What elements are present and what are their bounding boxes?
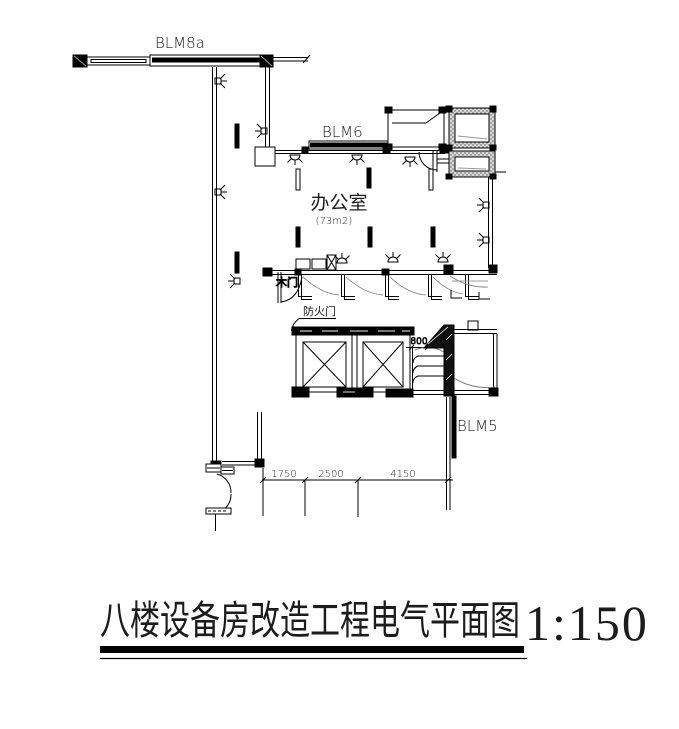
floor-plan-drawing: BLM8a BLM6 <box>0 0 679 729</box>
dim-4150: 4150 <box>390 469 415 480</box>
wood-door-label: 木门 <box>276 275 298 289</box>
busway-blm5: BLM5 <box>447 396 498 510</box>
sink <box>296 259 310 269</box>
dim-1750: 1750 <box>271 469 296 480</box>
ceiling-lamp-icon <box>350 155 365 165</box>
elevator-shaft <box>357 335 410 392</box>
exhaust-fan-icon <box>327 255 336 270</box>
sink <box>312 259 326 269</box>
ceiling-lamp-icon <box>403 157 418 167</box>
title-block: 八楼设备房改造工程电气平面图 1:150 <box>100 595 649 659</box>
office-name: 办公室 <box>310 192 367 214</box>
wall-lamp-icon <box>477 233 489 247</box>
stall-row: 木门 <box>263 252 497 303</box>
upper-right-rooms <box>385 106 506 179</box>
elevator-block: 800 <box>292 321 498 397</box>
fire-door-label: 防火门 <box>303 304 336 318</box>
elevator-shaft <box>296 335 352 392</box>
ceiling-lamp-icon <box>436 252 451 262</box>
blm6-label: BLM6 <box>322 123 363 141</box>
title-underline-thick <box>100 646 524 653</box>
dim-2500: 2500 <box>318 469 343 480</box>
lower-left-doors <box>206 412 264 514</box>
wall-lamp-icon <box>477 198 489 212</box>
floor-plan-canvas: BLM8a BLM6 <box>0 0 679 729</box>
ceiling-lamp-icon <box>386 252 401 262</box>
ceiling-lamp-icon <box>288 155 303 165</box>
ceiling-lamp-icon <box>335 253 350 263</box>
blm5-label: BLM5 <box>457 417 498 435</box>
busway-blm8a: BLM8a <box>73 34 310 67</box>
office-room: 办公室 (73m2) <box>288 155 418 227</box>
stair <box>413 347 445 392</box>
drawing-scale: 1:150 <box>525 595 649 651</box>
wall-lamp-icon <box>228 274 240 288</box>
stall-door-swings <box>303 276 488 295</box>
busway-blm6: BLM6 <box>309 123 389 149</box>
office-area: (73m2) <box>316 216 353 227</box>
dimension-line: 1750 2500 4150 <box>260 468 453 517</box>
drawing-title: 八楼设备房改造工程电气平面图 <box>100 598 520 644</box>
blm8a-label: BLM8a <box>155 34 205 52</box>
stall-partitions <box>299 275 480 300</box>
